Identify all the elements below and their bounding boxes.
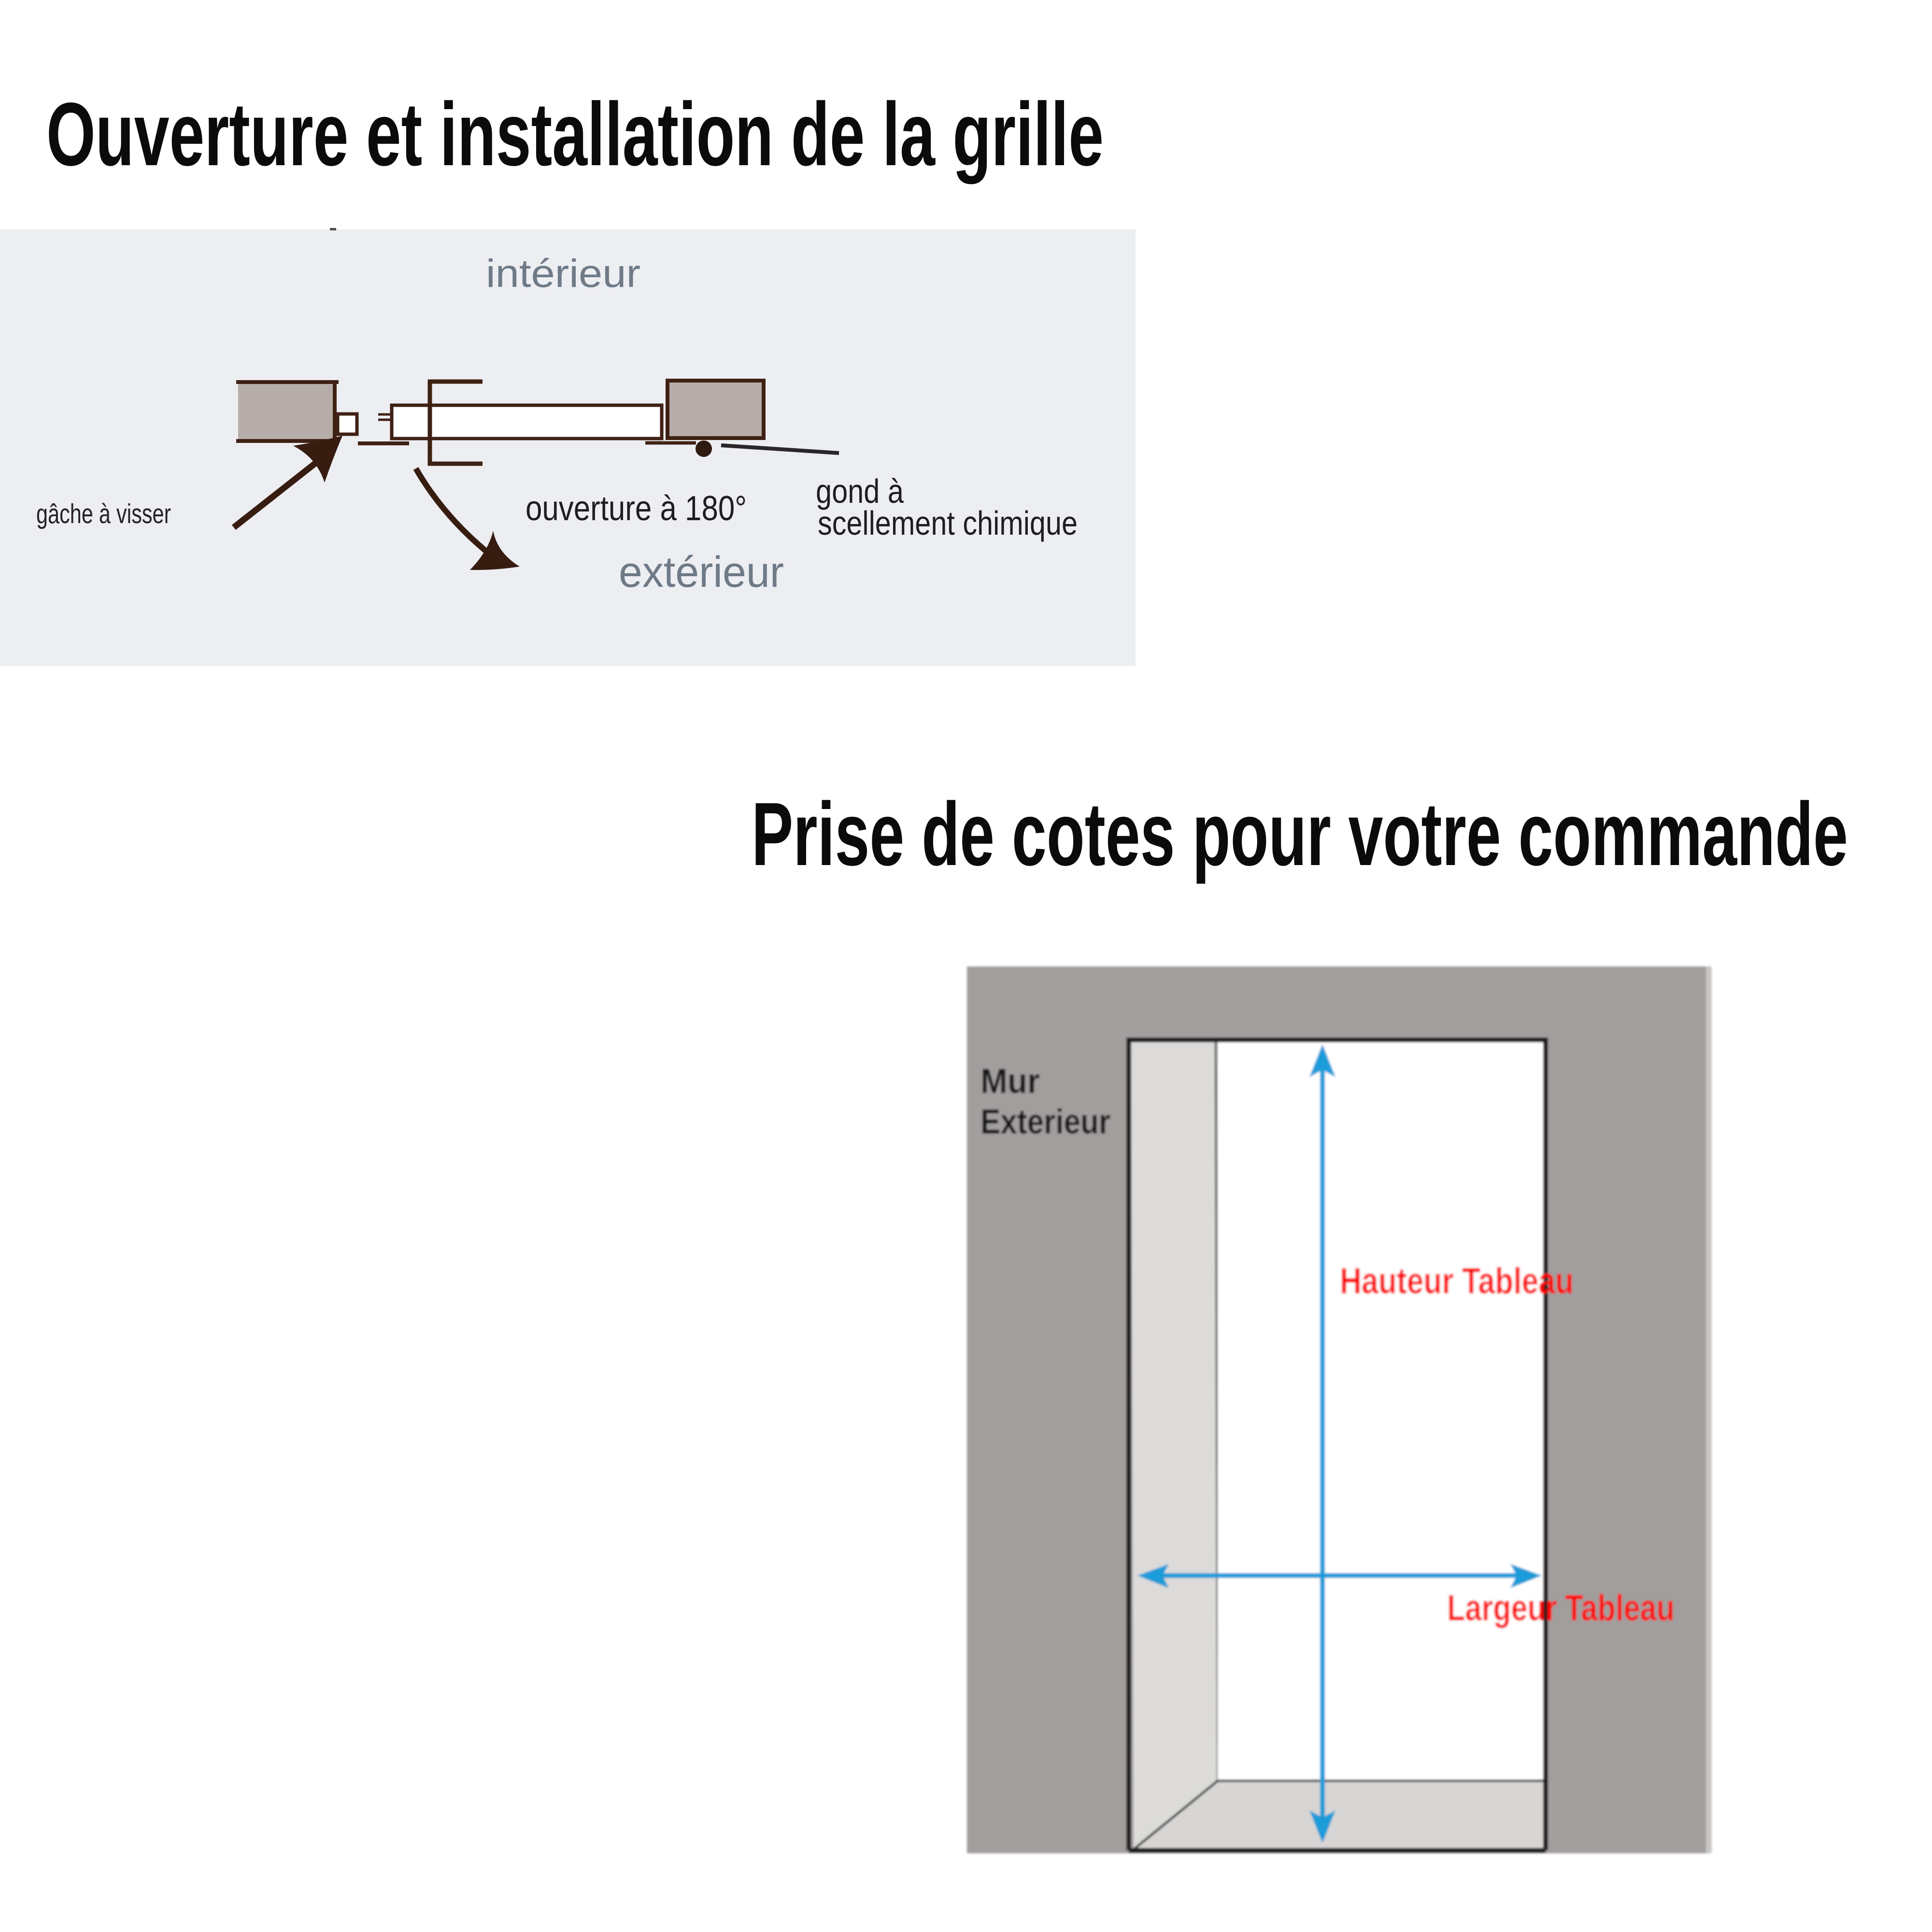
- svg-text:Ouverture et installation de l: Ouverture et installation de la grille: [46, 85, 1104, 185]
- svg-text:Mur: Mur: [980, 1062, 1040, 1101]
- svg-text:intérieur: intérieur: [486, 252, 640, 296]
- svg-text:Largeur Tableau: Largeur Tableau: [1447, 1588, 1675, 1629]
- svg-text:scellement chimique: scellement chimique: [818, 504, 1078, 542]
- svg-text:gâche à visser: gâche à visser: [36, 498, 171, 529]
- svg-text:Prise de cotes pour votre comm: Prise de cotes pour votre commande: [752, 784, 1848, 884]
- svg-text:Exterieur: Exterieur: [980, 1103, 1110, 1141]
- svg-text:Hauteur Tableau: Hauteur Tableau: [1340, 1261, 1574, 1302]
- svg-text:ouverture à 180°: ouverture à 180°: [526, 489, 747, 528]
- svg-text:extérieur: extérieur: [619, 548, 784, 597]
